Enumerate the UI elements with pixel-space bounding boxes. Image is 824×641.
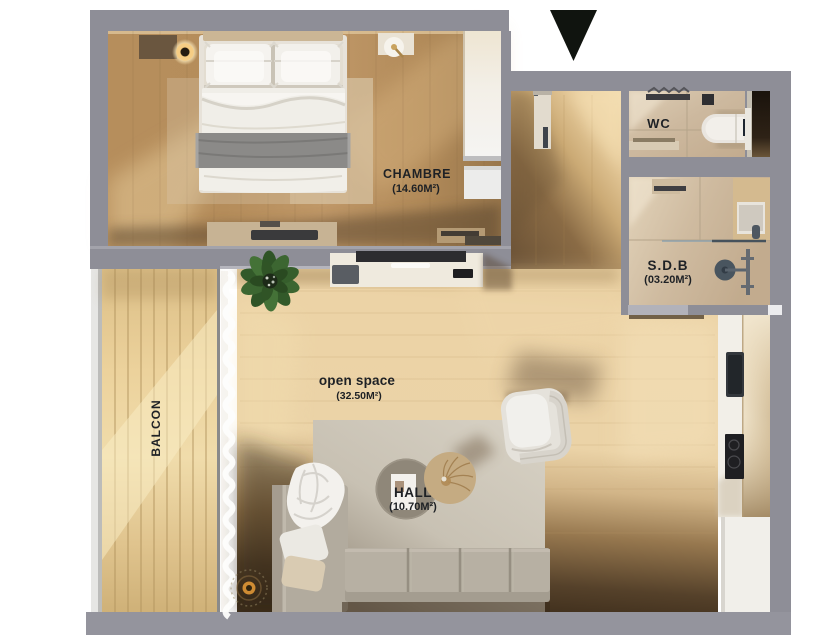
svg-text:BALCON: BALCON [149,399,163,456]
svg-text:(10.70M²): (10.70M²) [389,501,437,513]
svg-text:(32.50M²): (32.50M²) [336,390,382,402]
svg-text:WC: WC [647,116,671,131]
svg-text:HALL: HALL [394,485,432,500]
svg-text:(03.20M²): (03.20M²) [644,274,692,286]
svg-text:open space: open space [319,373,396,388]
svg-text:S.D.B: S.D.B [647,258,688,273]
svg-text:CHAMBRE: CHAMBRE [383,167,451,181]
svg-text:(14.60M²): (14.60M²) [392,183,440,195]
